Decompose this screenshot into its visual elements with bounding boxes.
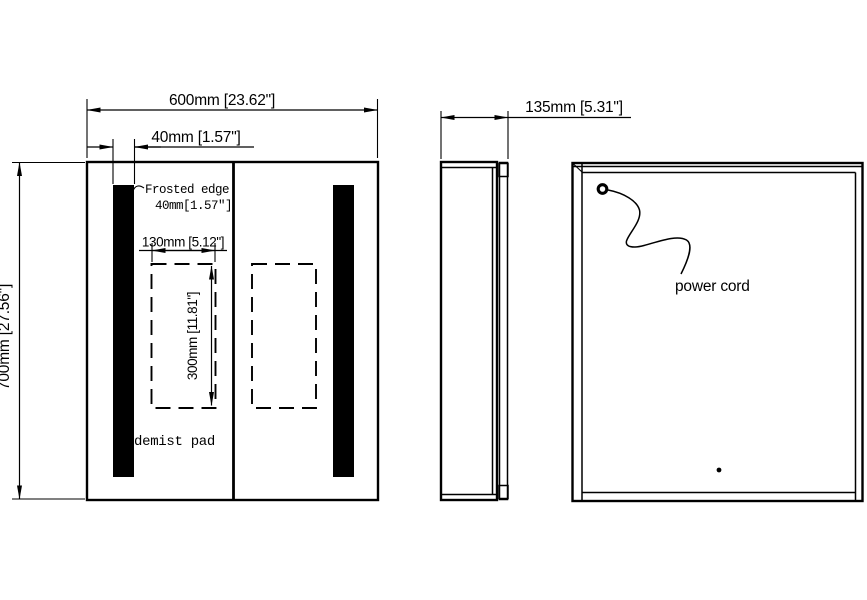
dim-overall-width-text: 600mm [23.62"] bbox=[169, 92, 275, 109]
side-view-outline bbox=[441, 162, 497, 500]
dim-depth: 135mm [5.31"] bbox=[441, 99, 631, 159]
led-strip-left bbox=[113, 185, 134, 477]
dim-pad-height: 300mm [11.81"] bbox=[185, 266, 212, 406]
demist-pad-left-outline bbox=[152, 264, 216, 408]
side-door-cap-top bbox=[499, 164, 508, 177]
front-view: 600mm [23.62"] 40mm [1.57"] Frosted edge… bbox=[0, 92, 378, 500]
dim-strip-width-text: 40mm [1.57"] bbox=[151, 129, 240, 146]
demist-pad-label: demist pad bbox=[134, 434, 215, 450]
frosted-edge-label-line2: 40mm[1.57″] bbox=[155, 199, 232, 213]
frosted-edge-leader bbox=[133, 186, 144, 191]
cord-exit-hole-icon bbox=[598, 185, 607, 194]
back-panel-dot bbox=[717, 468, 722, 473]
side-view: 135mm [5.31"] bbox=[441, 99, 631, 500]
frosted-edge-callout: Frosted edge 40mm[1.57″] bbox=[133, 183, 232, 213]
power-cord-label: power cord bbox=[675, 278, 750, 295]
mirror-cabinet-drawing: 600mm [23.62"] 40mm [1.57"] Frosted edge… bbox=[0, 0, 867, 600]
dim-pad-width-text: 130mm [5.12"] bbox=[142, 235, 224, 250]
dim-pad-width: 130mm [5.12"] bbox=[139, 235, 227, 263]
side-door-profile bbox=[500, 163, 508, 500]
demist-pad-right-outline bbox=[252, 264, 316, 408]
dim-pad-height-text: 300mm [11.81"] bbox=[185, 292, 200, 380]
dim-overall-height: 700mm [27.56"] bbox=[0, 163, 85, 500]
dim-strip-width: 40mm [1.57"] bbox=[87, 129, 254, 184]
dim-depth-text: 135mm [5.31"] bbox=[525, 99, 623, 116]
led-strip-right bbox=[333, 185, 354, 477]
technical-drawing-page: 600mm [23.62"] 40mm [1.57"] Frosted edge… bbox=[0, 0, 867, 600]
power-cord-curve bbox=[608, 190, 690, 274]
side-door-cap-bottom bbox=[499, 486, 508, 499]
back-corner-joint-line bbox=[574, 164, 583, 172]
frosted-edge-label-line1: Frosted edge bbox=[145, 183, 229, 197]
dim-overall-height-text: 700mm [27.56"] bbox=[0, 284, 13, 390]
back-view: power cord bbox=[573, 163, 863, 501]
back-view-outline bbox=[573, 163, 863, 501]
dim-overall-width: 600mm [23.62"] bbox=[87, 92, 378, 158]
